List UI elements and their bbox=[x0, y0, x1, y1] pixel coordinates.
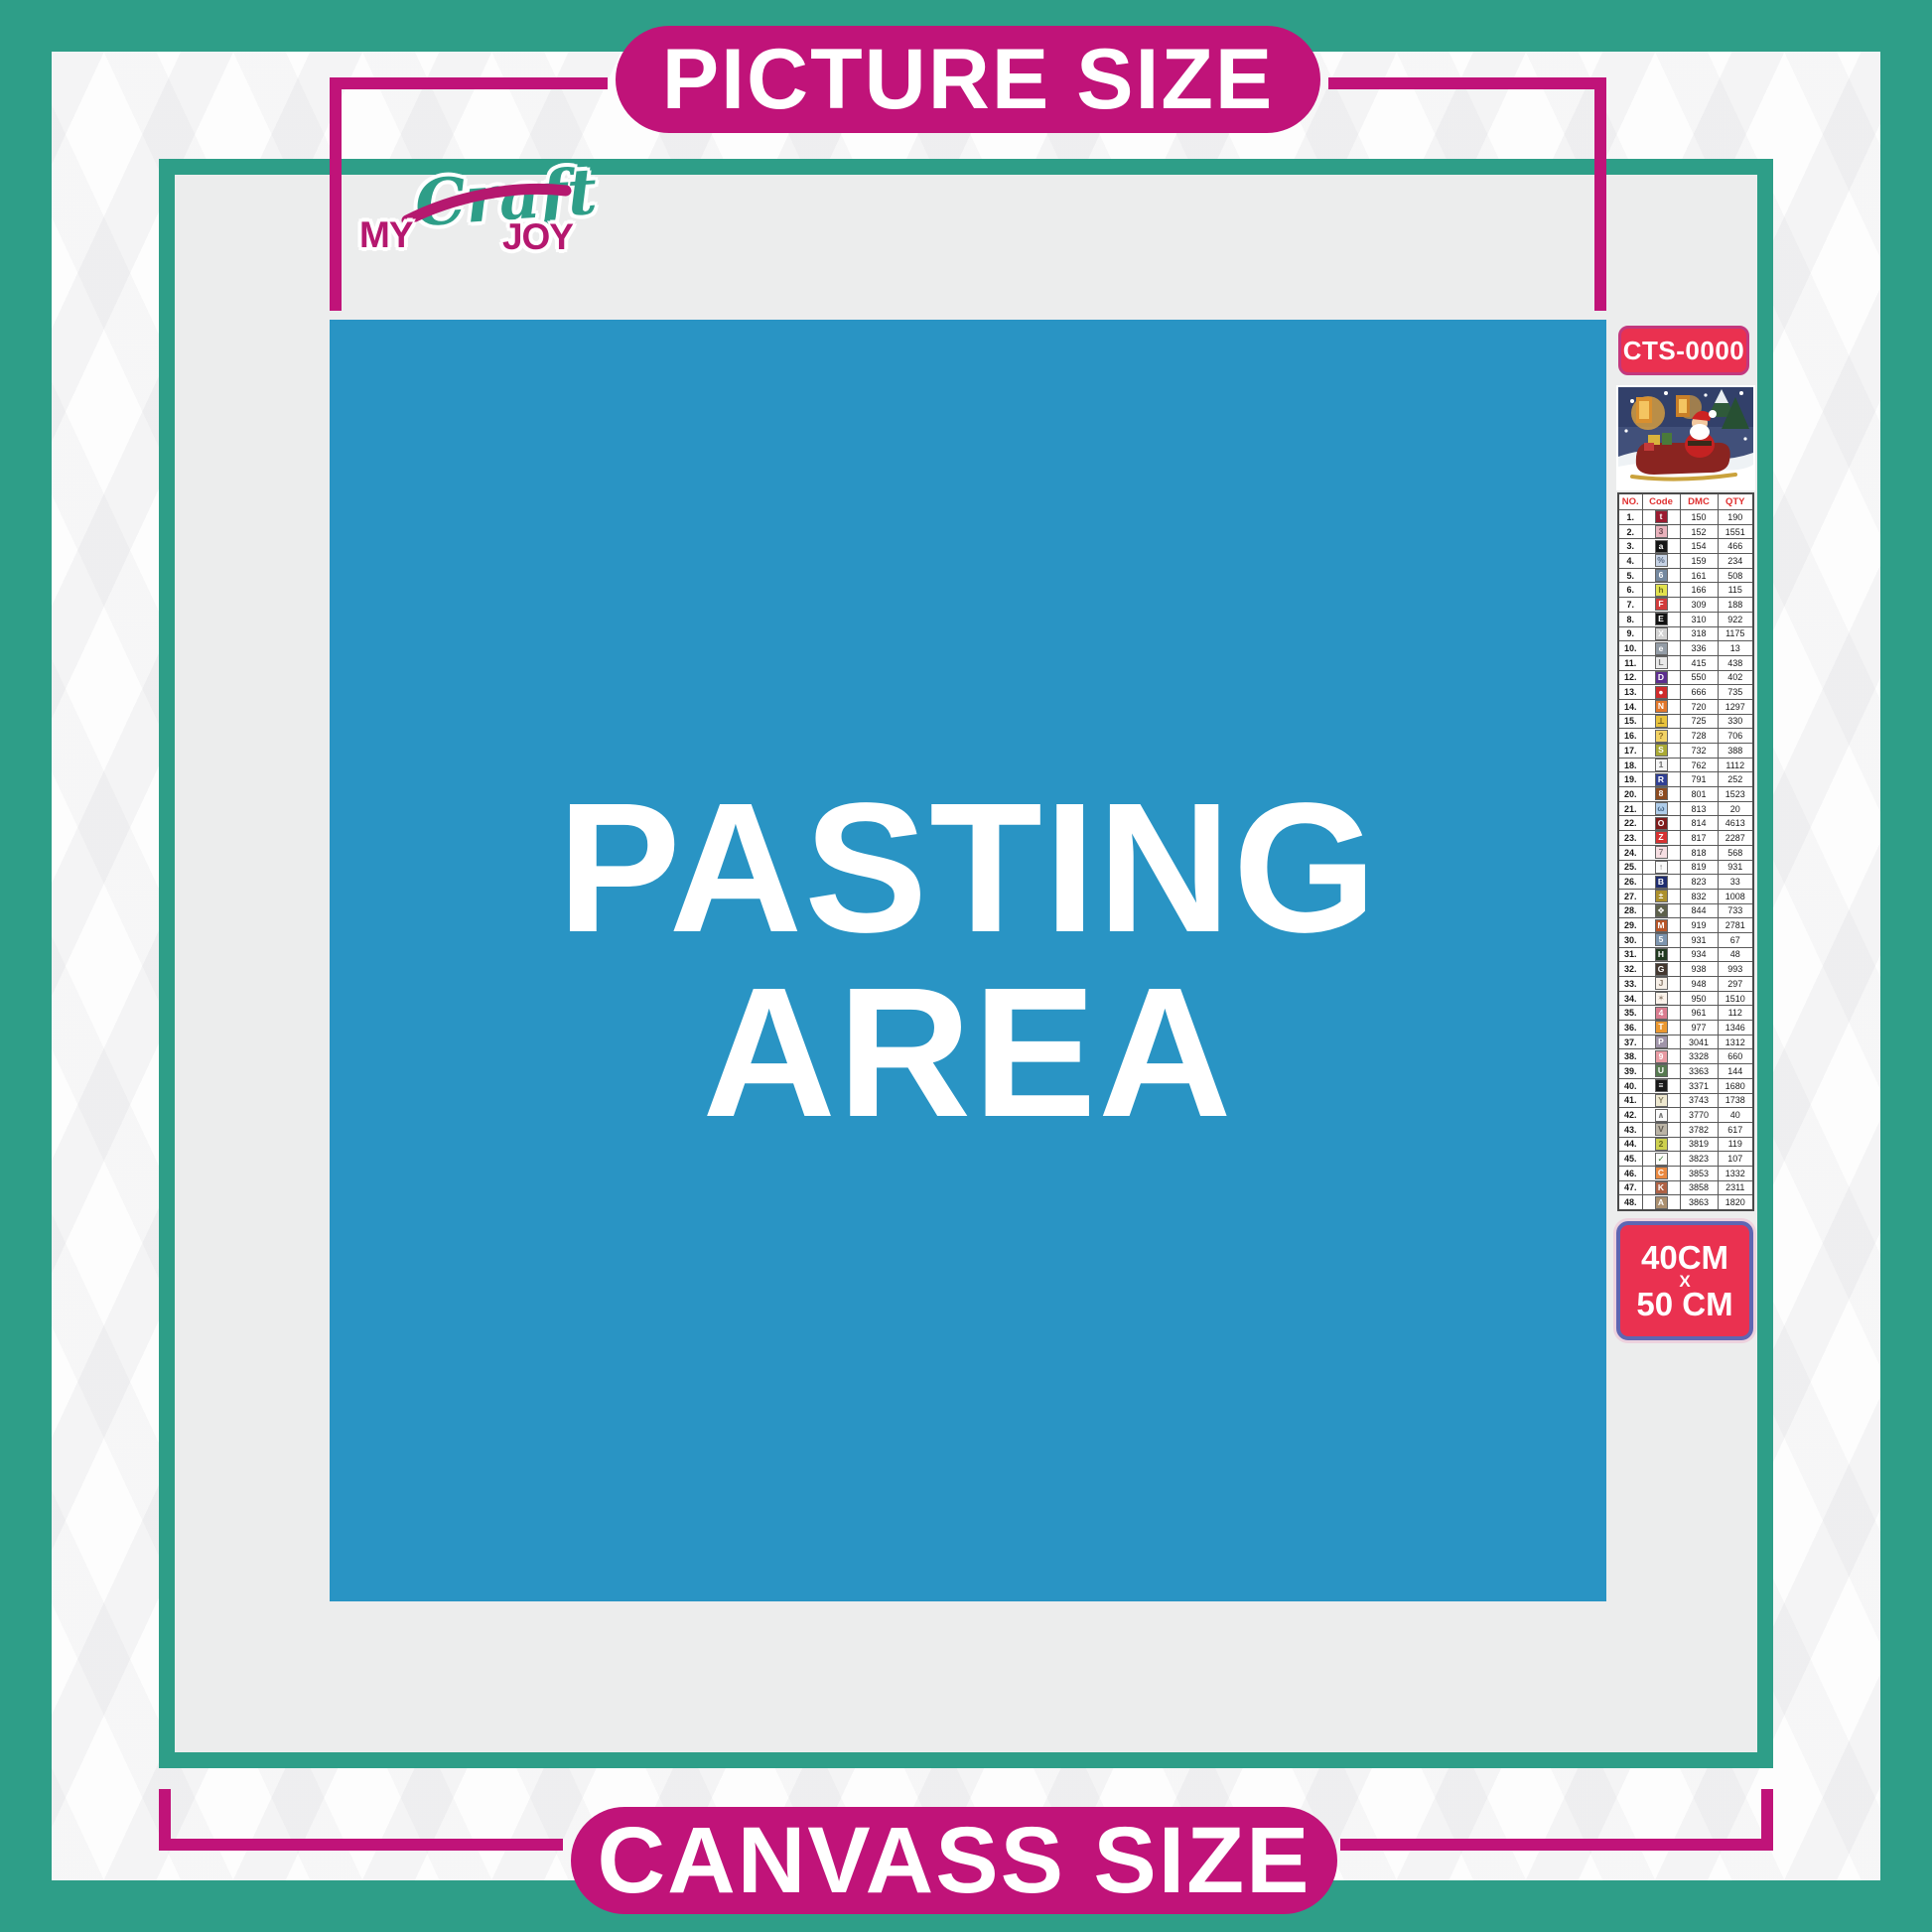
code-table-row: 23.Z8172287 bbox=[1618, 831, 1753, 846]
code-table-cell: ≡ bbox=[1642, 1078, 1680, 1093]
code-table-cell: 115 bbox=[1718, 583, 1753, 598]
code-table-row: 6.h166115 bbox=[1618, 583, 1753, 598]
code-table-cell: 934 bbox=[1680, 947, 1718, 962]
code-table-row: 22.O8144613 bbox=[1618, 816, 1753, 831]
code-table-cell: 336 bbox=[1680, 641, 1718, 656]
code-table-cell: 818 bbox=[1680, 845, 1718, 860]
code-table-cell: P bbox=[1642, 1035, 1680, 1049]
picture-size-bracket-line-right bbox=[1328, 77, 1606, 89]
code-table-cell: 40 bbox=[1718, 1108, 1753, 1123]
code-table-cell: 819 bbox=[1680, 860, 1718, 875]
code-table-cell: 2311 bbox=[1718, 1180, 1753, 1195]
code-table-row: 10.e33613 bbox=[1618, 641, 1753, 656]
code-table-cell: 23. bbox=[1618, 831, 1642, 846]
color-symbol-swatch: 7 bbox=[1655, 846, 1668, 859]
color-symbol-swatch: h bbox=[1655, 584, 1668, 597]
code-table-cell: 161 bbox=[1680, 568, 1718, 583]
color-symbol-swatch: 9 bbox=[1655, 1050, 1668, 1063]
color-symbol-swatch: ∧ bbox=[1655, 1109, 1668, 1122]
color-symbol-swatch: C bbox=[1655, 1167, 1668, 1179]
code-table-cell: 144 bbox=[1718, 1064, 1753, 1079]
code-table-header-row: NO.CodeDMCQTY bbox=[1618, 493, 1753, 510]
code-table-cell: 1008 bbox=[1718, 889, 1753, 903]
code-table-row: 42.∧377040 bbox=[1618, 1108, 1753, 1123]
code-table-cell: 993 bbox=[1718, 962, 1753, 977]
code-table-row: 33.J948297 bbox=[1618, 977, 1753, 992]
code-table-cell: 1297 bbox=[1718, 699, 1753, 714]
pasting-line-1: PASTING bbox=[558, 776, 1379, 961]
color-symbol-swatch: L bbox=[1655, 656, 1668, 669]
code-table-cell: 188 bbox=[1718, 598, 1753, 613]
color-symbol-swatch: X bbox=[1655, 627, 1668, 640]
code-table-cell: M bbox=[1642, 918, 1680, 933]
size-height-label: 50 CM bbox=[1636, 1289, 1732, 1320]
code-table-cell: 813 bbox=[1680, 801, 1718, 816]
code-table-cell: 720 bbox=[1680, 699, 1718, 714]
code-table-cell: 415 bbox=[1680, 655, 1718, 670]
code-table-cell: 5. bbox=[1618, 568, 1642, 583]
code-table-cell: 112 bbox=[1718, 1006, 1753, 1021]
code-table-cell: % bbox=[1642, 554, 1680, 569]
sku-badge: CTS-0000 bbox=[1618, 326, 1749, 375]
code-table-cell: 1175 bbox=[1718, 626, 1753, 641]
code-table-cell: a bbox=[1642, 539, 1680, 554]
code-table-row: 37.P30411312 bbox=[1618, 1035, 1753, 1049]
code-table-cell: e bbox=[1642, 641, 1680, 656]
code-table-row: 2.31521551 bbox=[1618, 524, 1753, 539]
code-table-cell: 1112 bbox=[1718, 758, 1753, 772]
code-table-cell: 7. bbox=[1618, 598, 1642, 613]
code-table-cell: 728 bbox=[1680, 729, 1718, 744]
code-table-cell: 30. bbox=[1618, 932, 1642, 947]
code-table-row: 13.●666735 bbox=[1618, 685, 1753, 700]
color-symbol-swatch: e bbox=[1655, 642, 1668, 655]
code-table-cell: ∧ bbox=[1642, 1108, 1680, 1123]
color-symbol-swatch: N bbox=[1655, 700, 1668, 713]
code-table-cell: T bbox=[1642, 1021, 1680, 1035]
code-table-cell: 5 bbox=[1642, 932, 1680, 947]
code-table-cell: 3853 bbox=[1680, 1166, 1718, 1180]
code-table-cell: 508 bbox=[1718, 568, 1753, 583]
code-table-row: 12.D550402 bbox=[1618, 670, 1753, 685]
code-table-row: 18.17621112 bbox=[1618, 758, 1753, 772]
code-table-cell: 1738 bbox=[1718, 1093, 1753, 1108]
color-symbol-swatch: A bbox=[1655, 1196, 1668, 1209]
code-table-row: 32.G938993 bbox=[1618, 962, 1753, 977]
size-width-label: 40CM bbox=[1641, 1242, 1728, 1274]
code-table-cell: 152 bbox=[1680, 524, 1718, 539]
color-symbol-swatch: F bbox=[1655, 598, 1668, 611]
code-table-cell: 13 bbox=[1718, 641, 1753, 656]
code-table-cell: 32. bbox=[1618, 962, 1642, 977]
code-table-row: 20.88011523 bbox=[1618, 787, 1753, 802]
canvass-size-bracket-line-left bbox=[159, 1839, 563, 1851]
color-symbol-swatch: ❖ bbox=[1655, 904, 1668, 917]
code-table-cell: 20. bbox=[1618, 787, 1642, 802]
code-table-cell: 568 bbox=[1718, 845, 1753, 860]
code-table-row: 28.❖844733 bbox=[1618, 903, 1753, 918]
code-table-cell: 37. bbox=[1618, 1035, 1642, 1049]
code-table-cell: 27. bbox=[1618, 889, 1642, 903]
code-table-cell: 3863 bbox=[1680, 1195, 1718, 1210]
code-table-cell: 3770 bbox=[1680, 1108, 1718, 1123]
code-table-cell: 234 bbox=[1718, 554, 1753, 569]
code-table-cell: 977 bbox=[1680, 1021, 1718, 1035]
code-table-cell: 107 bbox=[1718, 1152, 1753, 1167]
code-table-cell: 1312 bbox=[1718, 1035, 1753, 1049]
code-table-cell: 3041 bbox=[1680, 1035, 1718, 1049]
code-table-cell: 919 bbox=[1680, 918, 1718, 933]
code-table-cell: 1680 bbox=[1718, 1078, 1753, 1093]
code-table-cell: 309 bbox=[1680, 598, 1718, 613]
code-table-cell: 48. bbox=[1618, 1195, 1642, 1210]
code-table-cell: 297 bbox=[1718, 977, 1753, 992]
code-table-cell: 36. bbox=[1618, 1021, 1642, 1035]
code-table-row: 36.T9771346 bbox=[1618, 1021, 1753, 1035]
code-table-cell: B bbox=[1642, 875, 1680, 890]
code-table-row: 40.≡33711680 bbox=[1618, 1078, 1753, 1093]
code-table-cell: K bbox=[1642, 1180, 1680, 1195]
code-table-row: 25.↑819931 bbox=[1618, 860, 1753, 875]
code-table-row: 24.7818568 bbox=[1618, 845, 1753, 860]
code-table-row: 48.A38631820 bbox=[1618, 1195, 1753, 1210]
code-table-cell: 15. bbox=[1618, 714, 1642, 729]
santa-sleigh-preview-art bbox=[1618, 387, 1753, 488]
code-table-cell: H bbox=[1642, 947, 1680, 962]
picture-size-banner: PICTURE SIZE bbox=[616, 26, 1320, 133]
code-table-header: NO. bbox=[1618, 493, 1642, 510]
code-table-cell: 4. bbox=[1618, 554, 1642, 569]
code-table-cell: 823 bbox=[1680, 875, 1718, 890]
code-table-cell: R bbox=[1642, 772, 1680, 787]
picture-size-bracket-drop-right bbox=[1594, 77, 1606, 311]
code-table-cell: 725 bbox=[1680, 714, 1718, 729]
color-symbol-swatch: Z bbox=[1655, 831, 1668, 844]
code-table-cell: 17. bbox=[1618, 744, 1642, 759]
color-symbol-swatch: ✓ bbox=[1655, 1153, 1668, 1166]
code-table-cell: 8. bbox=[1618, 612, 1642, 626]
code-table-cell: 1346 bbox=[1718, 1021, 1753, 1035]
code-table-cell: L bbox=[1642, 655, 1680, 670]
canvas-size-badge: 40CM X 50 CM bbox=[1616, 1221, 1753, 1340]
color-symbol-swatch: G bbox=[1655, 963, 1668, 976]
code-table-row: 41.Y37431738 bbox=[1618, 1093, 1753, 1108]
color-symbol-swatch: K bbox=[1655, 1181, 1668, 1194]
design-preview-thumbnail bbox=[1616, 385, 1755, 490]
code-table-body: 1.t1501902.315215513.a1544664.%1592345.6… bbox=[1618, 510, 1753, 1211]
code-table-cell: 4 bbox=[1642, 1006, 1680, 1021]
color-symbol-swatch: S bbox=[1655, 744, 1668, 757]
code-table-cell: ❖ bbox=[1642, 903, 1680, 918]
code-table-cell: 3. bbox=[1618, 539, 1642, 554]
color-symbol-swatch: ± bbox=[1655, 890, 1668, 902]
color-symbol-swatch: T bbox=[1655, 1021, 1668, 1034]
color-symbol-swatch: ● bbox=[1655, 686, 1668, 699]
code-table-cell: 9 bbox=[1642, 1049, 1680, 1064]
picture-size-bracket-line-left bbox=[330, 77, 608, 89]
code-table-cell: 22. bbox=[1618, 816, 1642, 831]
code-table-cell: 159 bbox=[1680, 554, 1718, 569]
code-table-cell: 3363 bbox=[1680, 1064, 1718, 1079]
code-table-row: 26.B82333 bbox=[1618, 875, 1753, 890]
code-table-cell: 18. bbox=[1618, 758, 1642, 772]
product-infographic: PASTING AREA PICTURE SIZE CANVASS SIZE C… bbox=[0, 0, 1932, 1932]
code-table-cell: 1. bbox=[1618, 510, 1642, 525]
code-table-cell: 1551 bbox=[1718, 524, 1753, 539]
code-table-cell: 3823 bbox=[1680, 1152, 1718, 1167]
code-table-cell: 12. bbox=[1618, 670, 1642, 685]
code-table-row: 9.X3181175 bbox=[1618, 626, 1753, 641]
code-table-cell: 7 bbox=[1642, 845, 1680, 860]
code-table-cell: 67 bbox=[1718, 932, 1753, 947]
color-symbol-swatch: H bbox=[1655, 948, 1668, 961]
color-symbol-swatch: % bbox=[1655, 554, 1668, 567]
pasting-area-label: PASTING AREA bbox=[558, 776, 1379, 1146]
code-table-cell: 938 bbox=[1680, 962, 1718, 977]
code-table-cell: 4613 bbox=[1718, 816, 1753, 831]
code-table-row: 11.L415438 bbox=[1618, 655, 1753, 670]
code-table-cell: 1523 bbox=[1718, 787, 1753, 802]
code-table-row: 46.C38531332 bbox=[1618, 1166, 1753, 1180]
code-table-cell: 19. bbox=[1618, 772, 1642, 787]
color-symbol-swatch: O bbox=[1655, 817, 1668, 830]
color-symbol-swatch: 6 bbox=[1655, 569, 1668, 582]
code-table-cell: 31. bbox=[1618, 947, 1642, 962]
code-table-cell: 733 bbox=[1718, 903, 1753, 918]
code-table-cell: 2. bbox=[1618, 524, 1642, 539]
code-table-cell: 310 bbox=[1680, 612, 1718, 626]
color-symbol-swatch: ω bbox=[1655, 802, 1668, 815]
pasting-area: PASTING AREA bbox=[330, 320, 1606, 1601]
code-table-cell: 252 bbox=[1718, 772, 1753, 787]
color-symbol-swatch: U bbox=[1655, 1064, 1668, 1077]
code-table-cell: 6. bbox=[1618, 583, 1642, 598]
color-symbol-swatch: ↑ bbox=[1655, 861, 1668, 874]
code-table-cell: ⊥ bbox=[1642, 714, 1680, 729]
code-table-cell: 166 bbox=[1680, 583, 1718, 598]
code-table-cell: 330 bbox=[1718, 714, 1753, 729]
code-table-cell: 3782 bbox=[1680, 1122, 1718, 1137]
code-table-cell: 666 bbox=[1680, 685, 1718, 700]
code-table-cell: 13. bbox=[1618, 685, 1642, 700]
code-table-cell: Z bbox=[1642, 831, 1680, 846]
color-symbol-swatch: ? bbox=[1655, 730, 1668, 743]
code-table-header: Code bbox=[1642, 493, 1680, 510]
code-table-cell: 38. bbox=[1618, 1049, 1642, 1064]
color-symbol-swatch: a bbox=[1655, 540, 1668, 553]
code-table-cell: 1510 bbox=[1718, 991, 1753, 1006]
code-table-row: 30.593167 bbox=[1618, 932, 1753, 947]
code-table-cell: J bbox=[1642, 977, 1680, 992]
code-table-cell: 33. bbox=[1618, 977, 1642, 992]
code-table-cell: 24. bbox=[1618, 845, 1642, 860]
code-table-cell: V bbox=[1642, 1122, 1680, 1137]
code-table-cell: 48 bbox=[1718, 947, 1753, 962]
code-table-cell: 154 bbox=[1680, 539, 1718, 554]
code-table-cell: 119 bbox=[1718, 1137, 1753, 1152]
code-table-cell: 402 bbox=[1718, 670, 1753, 685]
color-symbol-swatch: D bbox=[1655, 671, 1668, 684]
code-table-cell: 28. bbox=[1618, 903, 1642, 918]
color-symbol-swatch: 4 bbox=[1655, 1007, 1668, 1020]
code-table-cell: 801 bbox=[1680, 787, 1718, 802]
code-table-cell: 318 bbox=[1680, 626, 1718, 641]
dmc-color-code-table: NO.CodeDMCQTY 1.t1501902.315215513.a1544… bbox=[1617, 492, 1754, 1211]
color-symbol-swatch: 1 bbox=[1655, 759, 1668, 771]
color-symbol-swatch: ≡ bbox=[1655, 1079, 1668, 1092]
code-table-row: 38.93328660 bbox=[1618, 1049, 1753, 1064]
code-table-cell: 14. bbox=[1618, 699, 1642, 714]
code-table-cell: 2781 bbox=[1718, 918, 1753, 933]
code-table-cell: S bbox=[1642, 744, 1680, 759]
code-table-cell: 1332 bbox=[1718, 1166, 1753, 1180]
code-table-cell: N bbox=[1642, 699, 1680, 714]
code-table-cell: 948 bbox=[1680, 977, 1718, 992]
code-table-cell: 20 bbox=[1718, 801, 1753, 816]
code-table-cell: 732 bbox=[1680, 744, 1718, 759]
logo-word-my: MY bbox=[359, 214, 413, 256]
code-table-cell: U bbox=[1642, 1064, 1680, 1079]
code-table-cell: h bbox=[1642, 583, 1680, 598]
code-table-header: QTY bbox=[1718, 493, 1753, 510]
code-table-cell: 45. bbox=[1618, 1152, 1642, 1167]
code-table-row: 43.V3782617 bbox=[1618, 1122, 1753, 1137]
canvass-size-bracket-end-left bbox=[159, 1789, 171, 1851]
code-table-cell: F bbox=[1642, 598, 1680, 613]
code-table-cell: O bbox=[1642, 816, 1680, 831]
color-symbol-swatch: V bbox=[1655, 1123, 1668, 1136]
code-table-cell: 706 bbox=[1718, 729, 1753, 744]
code-table-cell: 950 bbox=[1680, 991, 1718, 1006]
code-table-cell: 34. bbox=[1618, 991, 1642, 1006]
code-table-cell: 26. bbox=[1618, 875, 1642, 890]
code-table-row: 45.✓3823107 bbox=[1618, 1152, 1753, 1167]
code-table-row: 39.U3363144 bbox=[1618, 1064, 1753, 1079]
code-table-row: 31.H93448 bbox=[1618, 947, 1753, 962]
code-table-cell: 39. bbox=[1618, 1064, 1642, 1079]
code-table-cell: 190 bbox=[1718, 510, 1753, 525]
code-table-cell: 44. bbox=[1618, 1137, 1642, 1152]
code-table-row: 21.ω81320 bbox=[1618, 801, 1753, 816]
code-table-cell: 1 bbox=[1642, 758, 1680, 772]
code-table-cell: 6 bbox=[1642, 568, 1680, 583]
color-symbol-swatch: P bbox=[1655, 1035, 1668, 1048]
code-table-cell: ω bbox=[1642, 801, 1680, 816]
code-table-cell: 735 bbox=[1718, 685, 1753, 700]
code-table-cell: ✶ bbox=[1642, 991, 1680, 1006]
color-symbol-swatch: ⊥ bbox=[1655, 715, 1668, 728]
code-table-row: 14.N7201297 bbox=[1618, 699, 1753, 714]
code-table-cell: 814 bbox=[1680, 816, 1718, 831]
canvass-size-bracket-line-right bbox=[1340, 1839, 1773, 1851]
code-table-row: 27.±8321008 bbox=[1618, 889, 1753, 903]
code-table-cell: ? bbox=[1642, 729, 1680, 744]
code-table-cell: 817 bbox=[1680, 831, 1718, 846]
code-table-cell: 466 bbox=[1718, 539, 1753, 554]
code-table-cell: 1820 bbox=[1718, 1195, 1753, 1210]
color-symbol-swatch: ✶ bbox=[1655, 992, 1668, 1005]
code-table-cell: 931 bbox=[1718, 860, 1753, 875]
code-table-cell: C bbox=[1642, 1166, 1680, 1180]
color-symbol-swatch: 3 bbox=[1655, 525, 1668, 538]
code-table-cell: 35. bbox=[1618, 1006, 1642, 1021]
code-table-cell: 660 bbox=[1718, 1049, 1753, 1064]
code-table-row: 34.✶9501510 bbox=[1618, 991, 1753, 1006]
code-table-row: 29.M9192781 bbox=[1618, 918, 1753, 933]
code-table-cell: 40. bbox=[1618, 1078, 1642, 1093]
code-table-cell: E bbox=[1642, 612, 1680, 626]
code-table-cell: 9. bbox=[1618, 626, 1642, 641]
canvass-size-banner: CANVASS SIZE bbox=[571, 1807, 1337, 1914]
logo-word-joy: JOY bbox=[502, 216, 573, 258]
code-table-row: 7.F309188 bbox=[1618, 598, 1753, 613]
code-table-row: 5.6161508 bbox=[1618, 568, 1753, 583]
code-table-cell: ↑ bbox=[1642, 860, 1680, 875]
code-table-cell: 3328 bbox=[1680, 1049, 1718, 1064]
code-table-cell: X bbox=[1642, 626, 1680, 641]
code-table-header: DMC bbox=[1680, 493, 1718, 510]
code-table-cell: A bbox=[1642, 1195, 1680, 1210]
code-table-cell: 47. bbox=[1618, 1180, 1642, 1195]
code-table-cell: 42. bbox=[1618, 1108, 1642, 1123]
code-table-cell: 25. bbox=[1618, 860, 1642, 875]
code-table-cell: 550 bbox=[1680, 670, 1718, 685]
brand-logo-mycraftjoy: Craft MY JOY bbox=[359, 167, 573, 266]
code-table-cell: 3858 bbox=[1680, 1180, 1718, 1195]
code-table-cell: 3743 bbox=[1680, 1093, 1718, 1108]
code-table-row: 44.23819119 bbox=[1618, 1137, 1753, 1152]
color-symbol-swatch: t bbox=[1655, 510, 1668, 523]
code-table-cell: 2287 bbox=[1718, 831, 1753, 846]
code-table-cell: 8 bbox=[1642, 787, 1680, 802]
code-table-row: 8.E310922 bbox=[1618, 612, 1753, 626]
code-table-cell: 762 bbox=[1680, 758, 1718, 772]
canvass-size-bracket-end-right bbox=[1761, 1789, 1773, 1851]
code-table-cell: 41. bbox=[1618, 1093, 1642, 1108]
code-table-cell: 11. bbox=[1618, 655, 1642, 670]
code-table-row: 35.4961112 bbox=[1618, 1006, 1753, 1021]
color-symbol-swatch: 2 bbox=[1655, 1138, 1668, 1151]
picture-size-bracket-drop-left bbox=[330, 77, 342, 311]
code-table-cell: t bbox=[1642, 510, 1680, 525]
code-table-cell: G bbox=[1642, 962, 1680, 977]
code-table-cell: 2 bbox=[1642, 1137, 1680, 1152]
code-table-row: 16.?728706 bbox=[1618, 729, 1753, 744]
code-table-cell: ± bbox=[1642, 889, 1680, 903]
code-table-cell: 21. bbox=[1618, 801, 1642, 816]
code-table-cell: 10. bbox=[1618, 641, 1642, 656]
code-table-cell: Y bbox=[1642, 1093, 1680, 1108]
code-table-cell: 617 bbox=[1718, 1122, 1753, 1137]
color-symbol-swatch: E bbox=[1655, 613, 1668, 625]
code-table-cell: ● bbox=[1642, 685, 1680, 700]
code-table-cell: 922 bbox=[1718, 612, 1753, 626]
code-table-cell: 43. bbox=[1618, 1122, 1642, 1137]
code-table-cell: 388 bbox=[1718, 744, 1753, 759]
code-table-row: 15.⊥725330 bbox=[1618, 714, 1753, 729]
code-table-cell: 3819 bbox=[1680, 1137, 1718, 1152]
color-symbol-swatch: Y bbox=[1655, 1094, 1668, 1107]
color-symbol-swatch: J bbox=[1655, 977, 1668, 990]
code-table-cell: 844 bbox=[1680, 903, 1718, 918]
code-table-cell: 46. bbox=[1618, 1166, 1642, 1180]
color-symbol-swatch: M bbox=[1655, 919, 1668, 932]
color-symbol-swatch: 5 bbox=[1655, 933, 1668, 946]
code-table-cell: 33 bbox=[1718, 875, 1753, 890]
code-table-row: 1.t150190 bbox=[1618, 510, 1753, 525]
code-table-cell: 438 bbox=[1718, 655, 1753, 670]
code-table-row: 17.S732388 bbox=[1618, 744, 1753, 759]
